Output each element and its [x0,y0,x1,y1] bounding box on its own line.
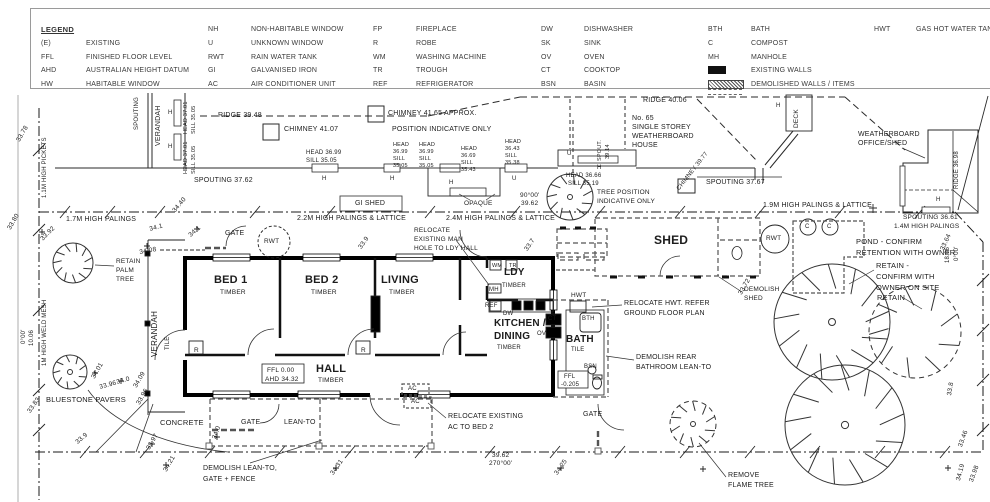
legend-desc: HABITABLE WINDOW [86,81,160,88]
rain-water-tank [258,226,290,258]
legend-desc: COMPOST [751,40,788,47]
legend-desc: BATH [751,26,770,33]
legend-desc: ROBE [416,40,437,47]
legend-abbr: TR [373,67,383,74]
legend-abbr: HW [41,81,53,88]
legend-abbr: MH [708,54,719,61]
legend-abbr: FP [373,26,382,33]
legend-abbr: CT [541,67,551,74]
legend-desc: TROUGH [416,67,448,74]
legend-desc: AIR CONDITIONER UNIT [251,81,336,88]
legend-desc: DISHWASHER [584,26,633,33]
site-plan-page: LEGEND (E)EXISTINGFFLFINISHED FLOOR LEVE… [0,0,990,502]
legend-abbr: U [208,40,213,47]
fixtures [145,196,838,415]
gi-shed-box [340,196,402,211]
legend-desc: NON-HABITABLE WINDOW [251,26,344,33]
legend-desc: SINK [584,40,601,47]
existing-house-walls [185,256,555,397]
ffl-box [558,371,588,388]
legend-desc: FINISHED FLOOR LEVEL [86,54,172,61]
tree-palm [53,243,93,283]
legend-abbr: AHD [41,67,56,74]
legend-abbr: BTH [708,26,723,33]
legend-desc: GALVANISED IRON [251,67,317,74]
demolished-gates [205,248,598,451]
office-shed [869,130,978,213]
legend-desc: UNKNOWN WINDOW [251,40,323,47]
legend-desc: REFRIGERATOR [416,81,473,88]
legend-abbr: REF [373,81,388,88]
legend-desc: FIREPLACE [416,26,457,33]
legend-desc: EXISTING [86,40,120,47]
legend-desc: DEMOLISHED WALLS / ITEMS [751,81,855,88]
legend-abbr: BSN [541,81,556,88]
legend-abbr: HWT [874,26,891,33]
legend-abbr: C [708,40,713,47]
neighbour-house [55,93,988,210]
tree-flame [670,401,716,447]
fireplace [371,296,380,332]
legend-abbr: FFL [41,54,54,61]
tree [869,286,961,378]
dimension-ticks [33,144,989,472]
legend: LEGEND (E)EXISTINGFFLFINISHED FLOOR LEVE… [30,8,990,89]
legend-desc: COOKTOP [584,67,620,74]
legend-abbr: GI [208,67,216,74]
thin-linework [88,148,925,477]
legend-swatch-demolished [708,80,744,89]
legend-abbr: SK [541,40,551,47]
legend-abbr: NH [208,26,219,33]
legend-desc: WASHING MACHINE [416,54,486,61]
legend-desc: GAS HOT WATER TANK [916,26,990,33]
legend-desc: RAIN WATER TANK [251,54,317,61]
interior-walls [185,258,553,355]
legend-desc: AUSTRALIAN HEIGHT DATUM [86,67,189,74]
tree-retain [774,264,890,380]
legend-swatch-existing [708,66,726,74]
demolished-outlines [160,218,864,446]
legend-abbr: OV [541,54,552,61]
tree-retain [785,365,905,485]
legend-abbr: WM [373,54,386,61]
legend-abbr: AC [208,81,218,88]
ffl-box [262,364,304,383]
legend-abbr: (E) [41,40,51,47]
legend-desc: MANHOLE [751,54,787,61]
legend-desc: BASIN [584,81,606,88]
legend-abbr: R [373,40,378,47]
tree [547,174,593,220]
legend-abbr: DW [541,26,553,33]
legend-title: LEGEND [41,25,74,34]
rain-water-tank [761,225,789,253]
legend-desc: EXISTING WALLS [751,67,812,74]
legend-desc: OVEN [584,54,605,61]
tree [53,355,87,389]
legend-abbr: RWT [208,54,224,61]
neighbour-roof-lines [200,97,905,176]
